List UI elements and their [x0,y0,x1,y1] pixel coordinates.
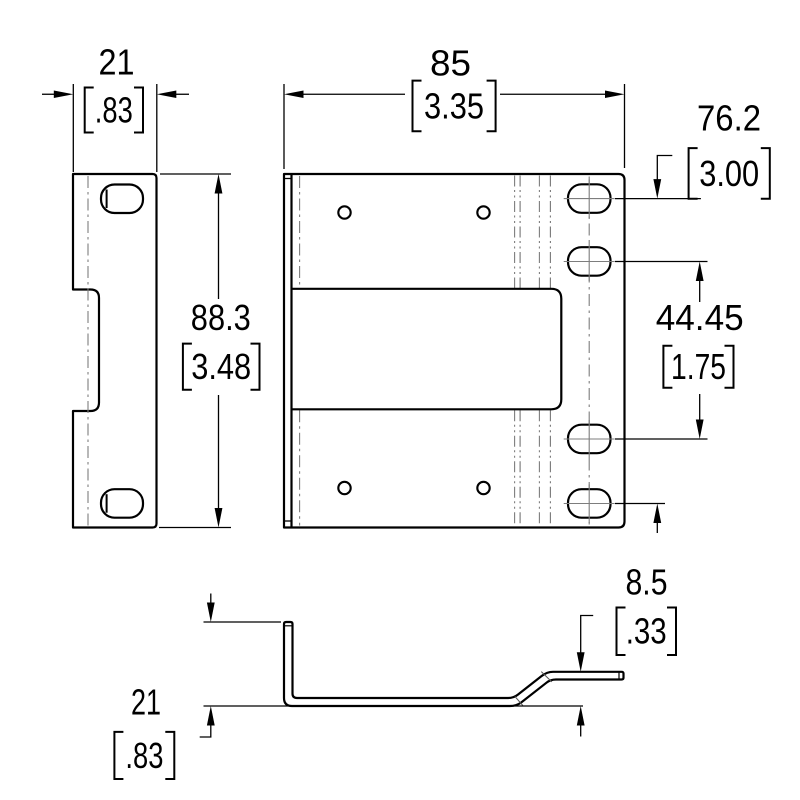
svg-text:21: 21 [99,41,135,82]
svg-text:76.2: 76.2 [697,98,761,139]
svg-text:21: 21 [131,682,161,723]
svg-text:85: 85 [430,43,471,84]
svg-text:8.5: 8.5 [626,562,668,603]
svg-text:.83: .83 [95,89,133,130]
svg-text:.83: .83 [125,735,163,776]
svg-text:3.48: 3.48 [191,346,251,387]
svg-text:3.35: 3.35 [424,85,484,126]
svg-text:.33: .33 [626,611,667,652]
svg-text:44.45: 44.45 [656,297,744,338]
svg-text:3.00: 3.00 [699,153,759,194]
svg-text:88.3: 88.3 [191,297,251,338]
svg-text:1.75: 1.75 [671,346,726,387]
